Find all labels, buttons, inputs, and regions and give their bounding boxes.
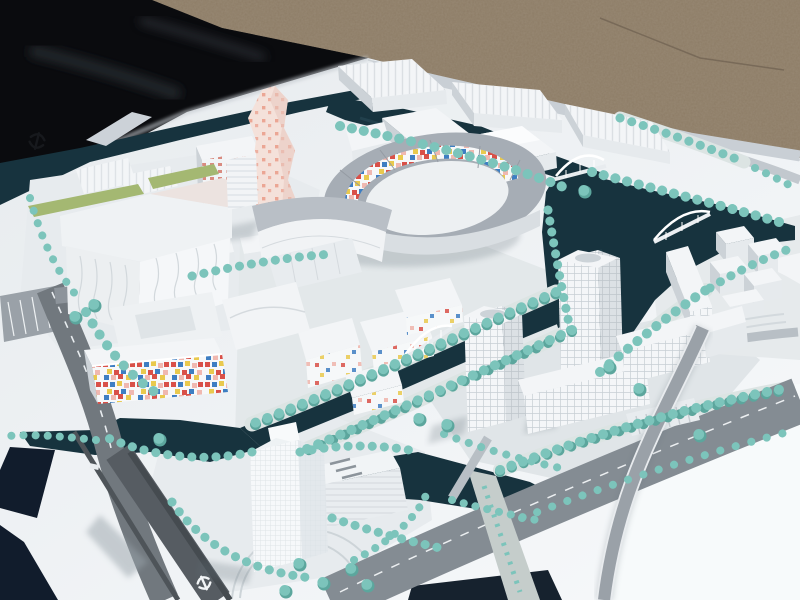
architectural-model-photo: [0, 0, 800, 600]
roof-oval: [575, 254, 601, 263]
model-scene: [0, 0, 800, 600]
